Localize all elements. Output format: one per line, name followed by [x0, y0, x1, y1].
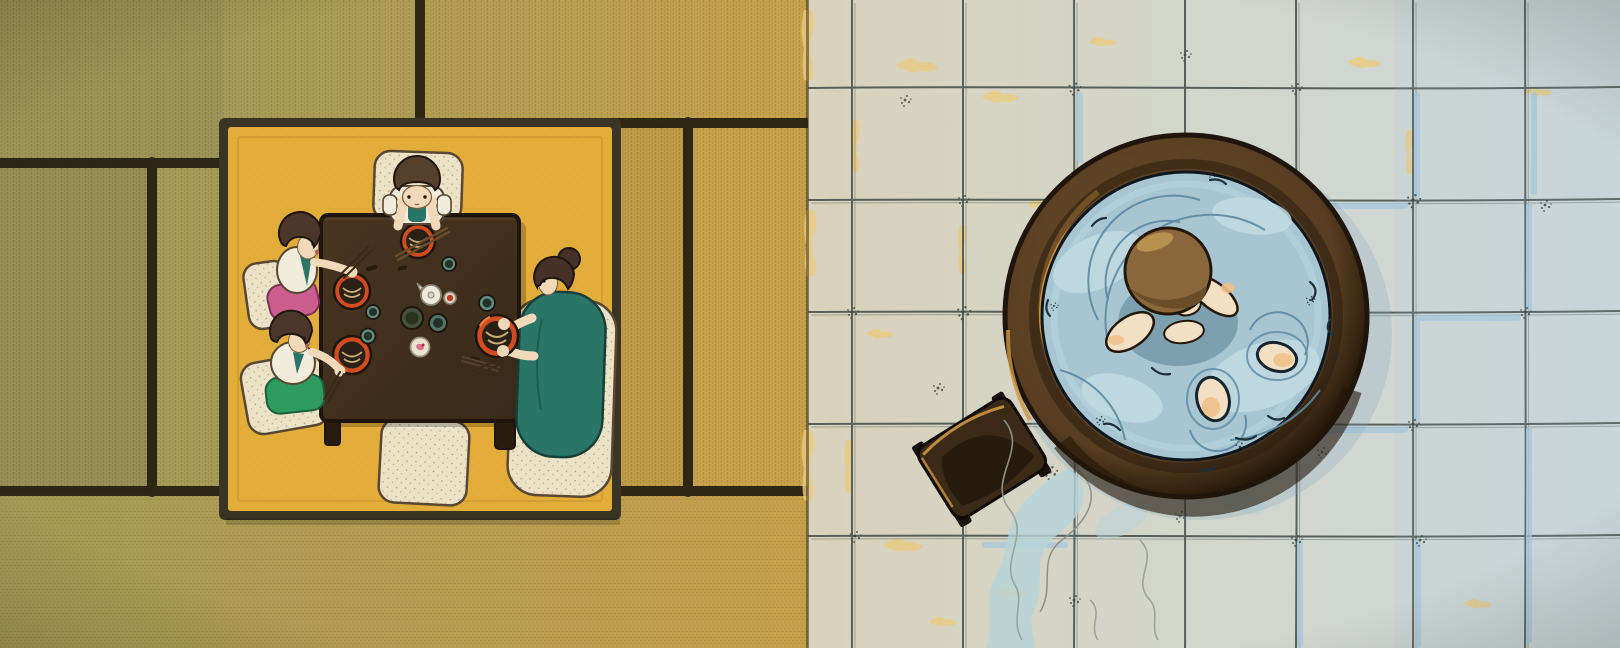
illustration-canvas: Top-down illustration diptych: a family …	[0, 0, 1620, 648]
illustration-svg	[0, 0, 1620, 648]
vignette	[0, 0, 1620, 648]
